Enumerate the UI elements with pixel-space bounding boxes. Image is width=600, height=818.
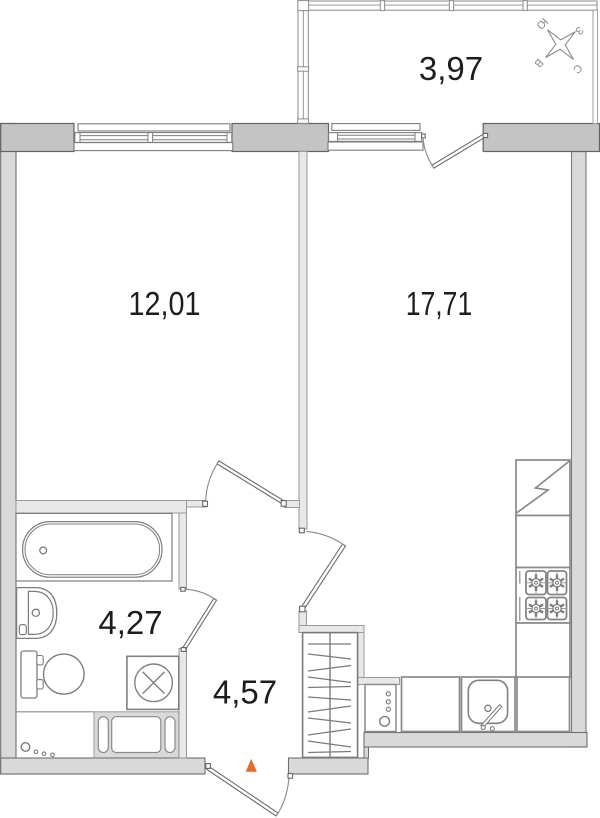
svg-text:17,71: 17,71 <box>406 285 473 322</box>
svg-text:4,57: 4,57 <box>213 674 277 711</box>
svg-text:4,27: 4,27 <box>98 604 162 641</box>
svg-text:В: В <box>532 56 546 70</box>
svg-text:3,97: 3,97 <box>419 50 483 87</box>
svg-text:Ю: Ю <box>534 15 550 31</box>
svg-text:С: С <box>570 61 584 75</box>
svg-text:12,01: 12,01 <box>129 285 201 322</box>
svg-text:З: З <box>572 24 585 37</box>
